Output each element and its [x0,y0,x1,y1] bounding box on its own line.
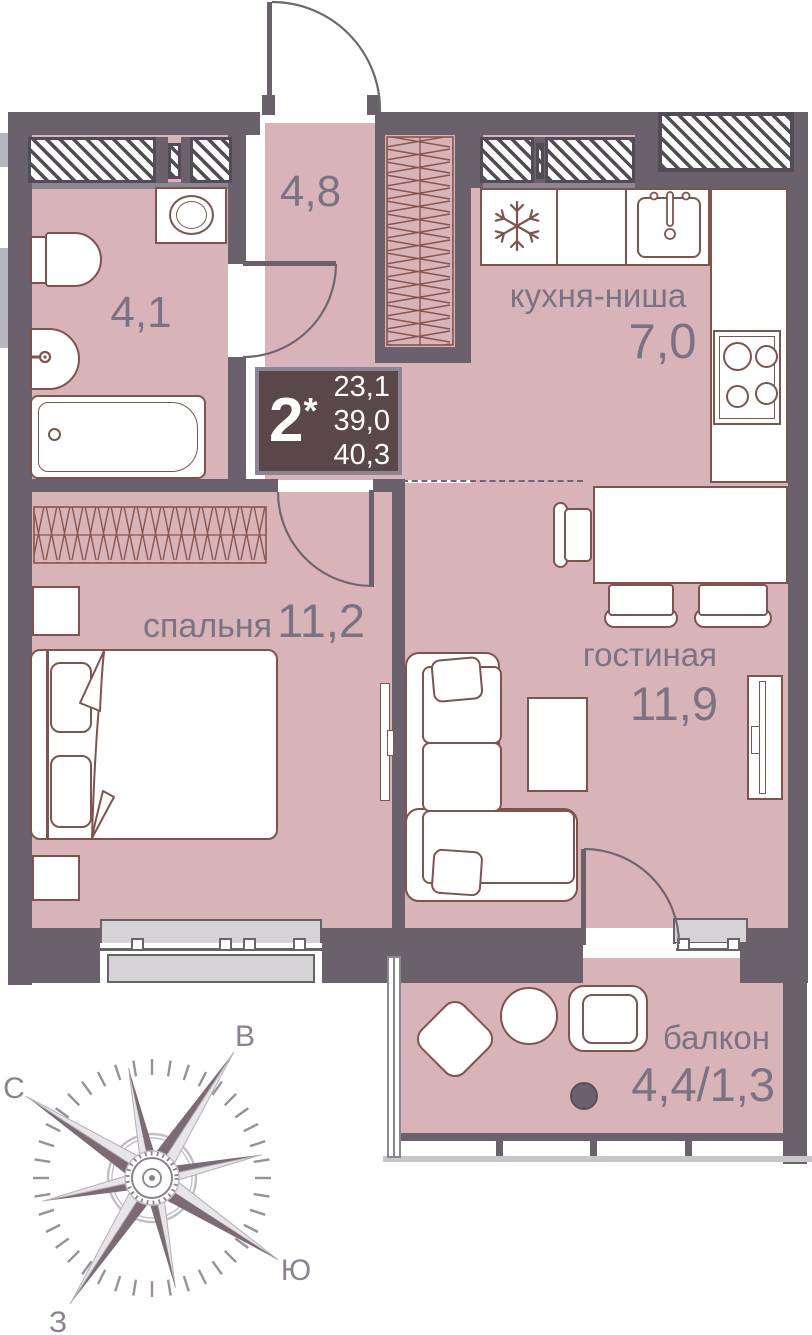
wall-bottom-b [322,928,392,983]
compass-east-label: В [235,1020,255,1053]
shaft-divider [181,137,190,183]
compass-west-label: З [49,1306,67,1335]
vent-shaft [190,137,232,183]
dining-chair-seat [564,508,592,562]
rooms-count: 2* [269,390,318,452]
balcony-area-label: 4,4/1,3 [608,1061,775,1108]
fridge-snowflake-icon [489,198,545,254]
balcony-rail-post [685,1133,692,1158]
bathroom-faucet-icon [28,344,56,370]
living-area-label: 11,9 [600,680,718,727]
bedroom-label: спальня 11,2 [143,597,365,644]
vent-shaft [480,137,534,183]
balcony-glazing-line [393,958,395,1156]
wall-bottom-d [740,928,808,983]
area-value: 39,0 [334,404,390,438]
coffee-table [527,697,588,792]
zone-dashed-line [402,480,583,482]
bedroom-window-outer-sill [107,954,315,983]
vent-shaft-small [536,143,544,179]
apartment-areas: 23,1 39,0 40,3 [334,370,390,472]
toilet-bowl [45,232,102,287]
dining-chair-seat [608,584,674,616]
stove-burner [726,385,749,408]
shaft-divider [156,137,168,183]
wall-face-tab [0,248,8,348]
floor-plan: 2* 23,1 39,0 40,3 4,1 4,8 кухня-ниша 7,0… [0,0,812,1335]
hallway-area-label: 4,8 [268,170,353,214]
bedroom-wardrobe-rail [32,505,268,565]
vent-shaft-small [168,143,181,179]
balcony-column [570,1082,598,1110]
vent-shaft [545,137,635,183]
bedroom-door-arc [270,484,378,592]
stove-burner [755,382,778,405]
nightstand [32,855,80,901]
wall-wardrobe-left [375,135,385,363]
entry-door-arc [262,0,387,118]
sofa-pillow [430,656,484,703]
washing-machine-door-inner [176,201,207,229]
wall-wardrobe-right [455,135,471,363]
nightstand [32,586,80,636]
balcony-rail [387,1133,807,1141]
area-value: 23,1 [334,370,390,404]
balcony-table [500,987,558,1045]
compass-south-label: Ю [281,1254,311,1287]
sofa-cushion [422,742,502,812]
living-name-label: гостиная [545,638,717,671]
sofa-pillow [430,848,483,896]
bed-blanket-fold [72,647,128,842]
balcony-chair-seat [582,994,638,1044]
bathroom-area-label: 4,1 [98,291,184,335]
wall-bottom-c [392,928,583,983]
window-handle [727,938,740,951]
wall-right [788,112,808,983]
counter-divider [625,190,627,264]
wall-left [8,112,32,985]
balcony-rail-post [590,1133,597,1158]
vent-shaft-corner [658,112,794,172]
kitchen-area-label: 7,0 [600,318,725,367]
window-handle [219,938,232,951]
window-handle [131,938,144,951]
bed-headboard-line [46,651,49,838]
bedroom-area-label: 11,2 [277,597,365,644]
bedroom-name-label: спальня [143,609,272,643]
tv-panel [759,681,766,794]
stove-burner [755,345,778,368]
hall-wardrobe-rail [385,135,455,347]
compass-rose: С В Ю З [0,1000,320,1335]
wall-mid-left [8,479,278,492]
window-handle [293,938,306,951]
wall-bathroom-lower [228,357,246,480]
kitchen-name-label: кухня-ниша [473,279,723,312]
dining-chair-seat [698,584,768,616]
vent-shaft [28,137,156,183]
counter-divider [556,190,558,264]
bathtub-drain [48,428,61,441]
wall-bottom-a [8,928,100,983]
wall-face-tab [0,133,8,167]
tv-bracket [751,726,760,754]
wall-balcony-right [783,983,807,1133]
balcony-outer-line [383,1156,812,1162]
dining-table [593,486,788,584]
wall-wardrobe-bottom [375,347,471,363]
kitchen-faucet-icon [648,188,692,244]
balcony-name-label: балкон [638,1021,770,1054]
asterisk: * [303,390,317,431]
bathtub-inner [38,402,198,472]
apartment-info-box: 2* 23,1 39,0 40,3 [255,367,402,475]
bathroom-door-arc [236,256,342,362]
wall-top-left [8,112,260,135]
area-value: 40,3 [334,438,390,472]
balcony-rail-post [496,1133,503,1158]
balcony-door-arc [576,843,686,949]
compass-north-label: С [3,1072,25,1105]
bedroom-tv-bracket [387,730,394,756]
window-handle [243,938,256,951]
stove-burner [723,342,752,371]
